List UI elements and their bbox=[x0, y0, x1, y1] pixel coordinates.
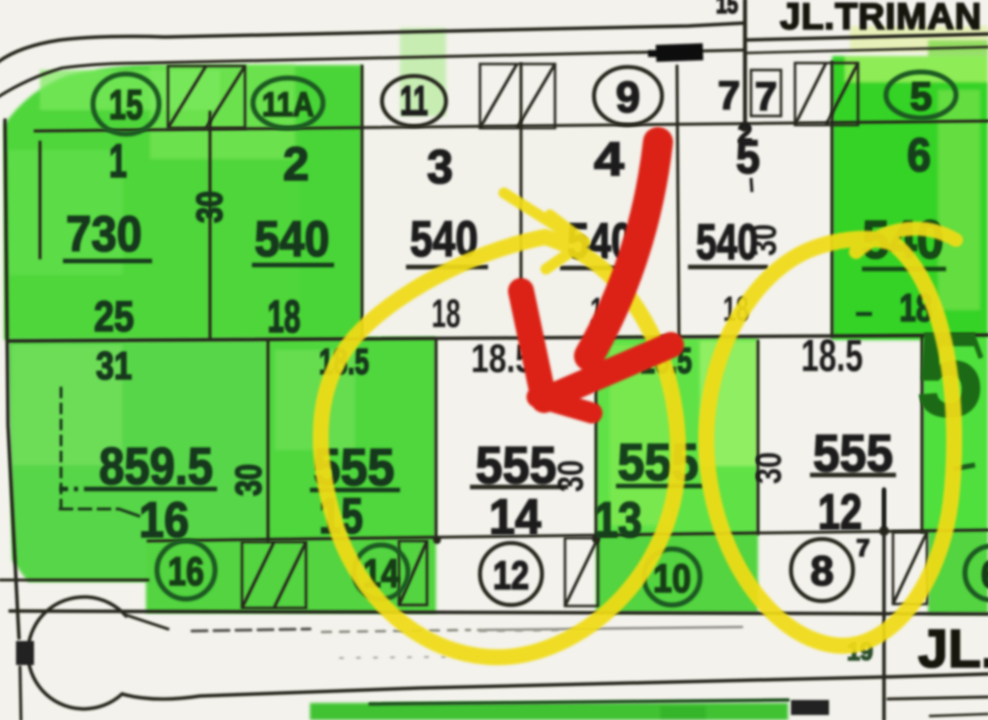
svg-text:30: 30 bbox=[189, 191, 230, 223]
svg-text:6: 6 bbox=[907, 128, 931, 181]
svg-text:30: 30 bbox=[228, 464, 269, 496]
svg-text:1: 1 bbox=[109, 134, 127, 187]
svg-text:30: 30 bbox=[748, 452, 789, 484]
svg-text:5: 5 bbox=[736, 130, 760, 183]
svg-text:13: 13 bbox=[594, 492, 642, 548]
svg-text:8: 8 bbox=[810, 547, 833, 594]
svg-text:15: 15 bbox=[109, 81, 143, 128]
svg-text:3: 3 bbox=[427, 140, 453, 193]
svg-text:18: 18 bbox=[268, 291, 301, 342]
svg-text:7: 7 bbox=[718, 74, 740, 118]
svg-text:30: 30 bbox=[550, 460, 591, 492]
svg-text:25: 25 bbox=[94, 293, 134, 341]
svg-text:31: 31 bbox=[96, 345, 132, 388]
svg-text:16: 16 bbox=[139, 492, 189, 548]
svg-text:2: 2 bbox=[283, 137, 309, 190]
svg-text:18: 18 bbox=[432, 292, 461, 336]
svg-text:540: 540 bbox=[255, 211, 330, 267]
svg-text:7: 7 bbox=[755, 75, 777, 119]
svg-text:16: 16 bbox=[168, 550, 204, 594]
svg-text:555: 555 bbox=[618, 434, 699, 492]
svg-text:6: 6 bbox=[981, 553, 988, 597]
svg-text:12: 12 bbox=[493, 554, 529, 598]
svg-text:14: 14 bbox=[489, 489, 541, 545]
svg-text:11A: 11A bbox=[262, 86, 314, 124]
svg-text:9: 9 bbox=[616, 73, 640, 122]
svg-text:12: 12 bbox=[818, 484, 862, 540]
svg-text:18.5: 18.5 bbox=[801, 330, 863, 381]
svg-text:730: 730 bbox=[66, 206, 142, 262]
svg-text:4: 4 bbox=[594, 132, 624, 185]
svg-text:15: 15 bbox=[716, 0, 738, 19]
svg-text:JL.T: JL.T bbox=[918, 619, 988, 679]
svg-text:5: 5 bbox=[910, 75, 932, 119]
svg-text:JL.TRIMAN: JL.TRIMAN bbox=[780, 0, 982, 37]
svg-text:11: 11 bbox=[400, 77, 428, 124]
svg-text:30: 30 bbox=[743, 224, 784, 256]
svg-text:10: 10 bbox=[653, 557, 691, 601]
